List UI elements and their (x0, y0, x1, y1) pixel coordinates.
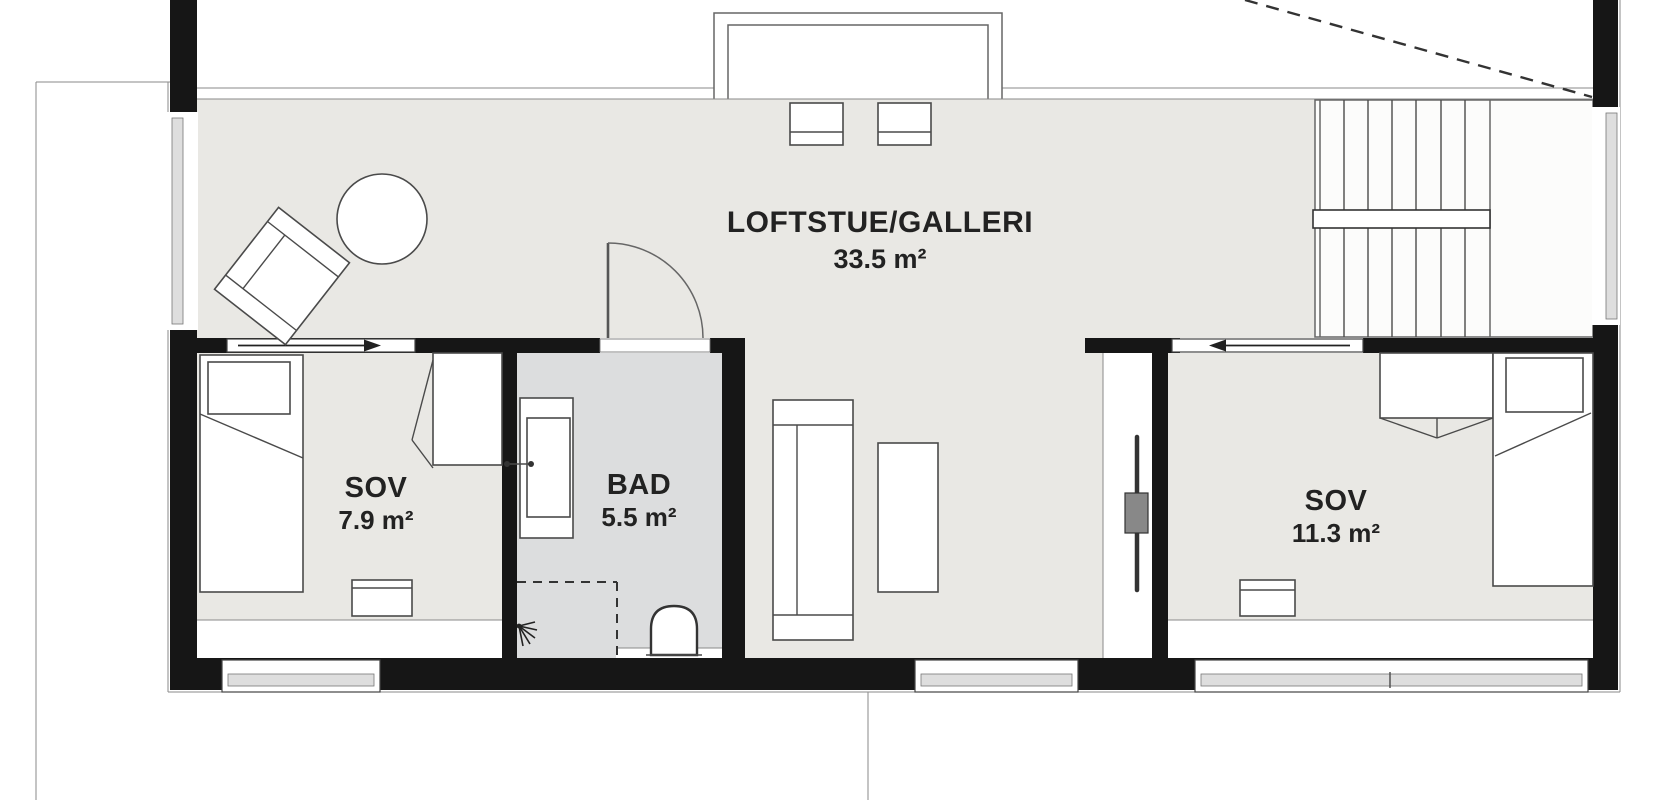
pillow (208, 362, 290, 414)
wall-bathroom-left (502, 353, 517, 658)
bathroom-area: 5.5 m² (601, 502, 676, 532)
floor-plan-drawing: LOFTSTUE/GALLERI 33.5 m² SOV 7.9 m² BAD … (0, 0, 1670, 800)
nightstand-right (1240, 580, 1295, 616)
nightstand-left (352, 580, 412, 616)
loft-room-area: 33.5 m² (833, 244, 926, 274)
toilet (646, 606, 702, 655)
dormer-bay (714, 13, 1002, 99)
round-table (337, 174, 427, 264)
loft-room-name: LOFTSTUE/GALLERI (727, 206, 1033, 239)
wall-right-bottom (1593, 325, 1618, 690)
bedroom-right-name: SOV (1305, 485, 1368, 517)
window-bedroom-right (1195, 660, 1588, 692)
wall-right-top (1593, 0, 1618, 107)
pocket-door-handle (1125, 493, 1148, 533)
single-bed (200, 355, 303, 592)
window-loft (915, 660, 1078, 692)
wall-left-top (170, 0, 197, 112)
gallery-chair-1 (790, 103, 843, 145)
bedroom-right-area: 11.3 m² (1292, 518, 1381, 548)
wall-rooms-top-mid (710, 338, 745, 353)
double-bed (1493, 353, 1593, 586)
staircase (1313, 100, 1593, 337)
wall-bathroom-right (722, 353, 745, 658)
pillow (1506, 358, 1583, 412)
gallery-chair-2 (878, 103, 931, 145)
coffee-table (878, 443, 938, 592)
stair-handrail (1313, 210, 1490, 228)
wall-bedroom-right-pocket (1152, 353, 1168, 658)
bathroom-name: BAD (607, 469, 671, 501)
window-bedroom-left (222, 660, 380, 692)
window-right-wall (1606, 113, 1617, 319)
floor-plan-page: LOFTSTUE/GALLERI 33.5 m² SOV 7.9 m² BAD … (0, 0, 1670, 800)
wall-rooms-top-right (1363, 338, 1593, 353)
sofa (773, 400, 853, 640)
window-left-wall (172, 118, 183, 324)
wall-left-bottom (170, 330, 197, 690)
bedroom-left-area: 7.9 m² (338, 505, 413, 535)
bedroom-left-name: SOV (345, 472, 408, 504)
wall-rooms-top-stub (1085, 338, 1180, 353)
bedroom-right-sliding-door (1172, 339, 1363, 352)
bedroom-left-sliding-door (227, 339, 415, 352)
